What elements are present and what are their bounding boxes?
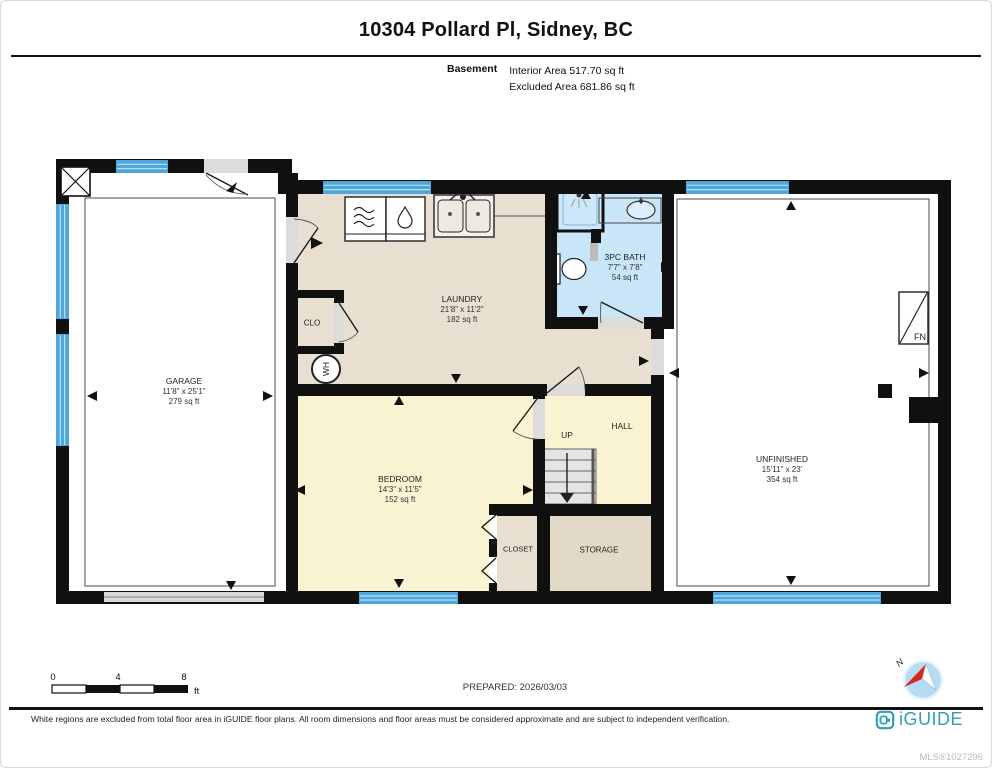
structural-post [878, 384, 892, 398]
up-label: UP [561, 430, 573, 440]
furnace-icon: FN [899, 292, 928, 344]
storage-label: STORAGE [580, 546, 619, 555]
iguide-logo-text: iGUIDE [899, 709, 963, 730]
garage-door [104, 592, 264, 602]
prepared-date: PREPARED: 2026/03/03 [39, 682, 991, 693]
post-x-box [61, 167, 90, 196]
disclaimer-text: White regions are excluded from total fl… [31, 714, 831, 724]
laundry-label: LAUNDRY 21'8" x 11'2" 182 sq ft [440, 294, 483, 326]
water-heater-label: WH [321, 362, 331, 376]
hall-label: HALL [611, 421, 632, 431]
furnace-label: FN [914, 332, 926, 342]
dryer-icon [386, 197, 425, 241]
floorplan-page: 10304 Pollard Pl, Sidney, BC Basement In… [0, 0, 992, 768]
footer-divider [9, 707, 983, 710]
clo-label: CLO [304, 319, 320, 328]
iguide-logo: iGUIDE [875, 709, 963, 730]
water-heater-icon: WH [312, 355, 340, 383]
compass-north-label: N [894, 656, 906, 668]
mls-number: MLS®1027296 [919, 752, 983, 763]
garage-label: GARAGE 11'8" x 25'1" 279 sq ft [162, 376, 205, 408]
half-wall [590, 243, 598, 261]
bath-label: 3PC BATH 7'7" x 7'8" 54 sq ft [605, 252, 646, 284]
washer-icon [345, 197, 386, 241]
unfinished-label: UNFINISHED 15'11" x 23' 354 sq ft [756, 454, 808, 486]
wall-notch [909, 397, 938, 423]
closet-label: CLOSET [503, 545, 533, 554]
stairs [539, 449, 596, 504]
bedroom-label: BEDROOM 14'3" x 11'5" 152 sq ft [378, 474, 422, 506]
floor-plan-graphic: WH FN [1, 1, 992, 768]
iguide-logo-icon [875, 710, 895, 730]
